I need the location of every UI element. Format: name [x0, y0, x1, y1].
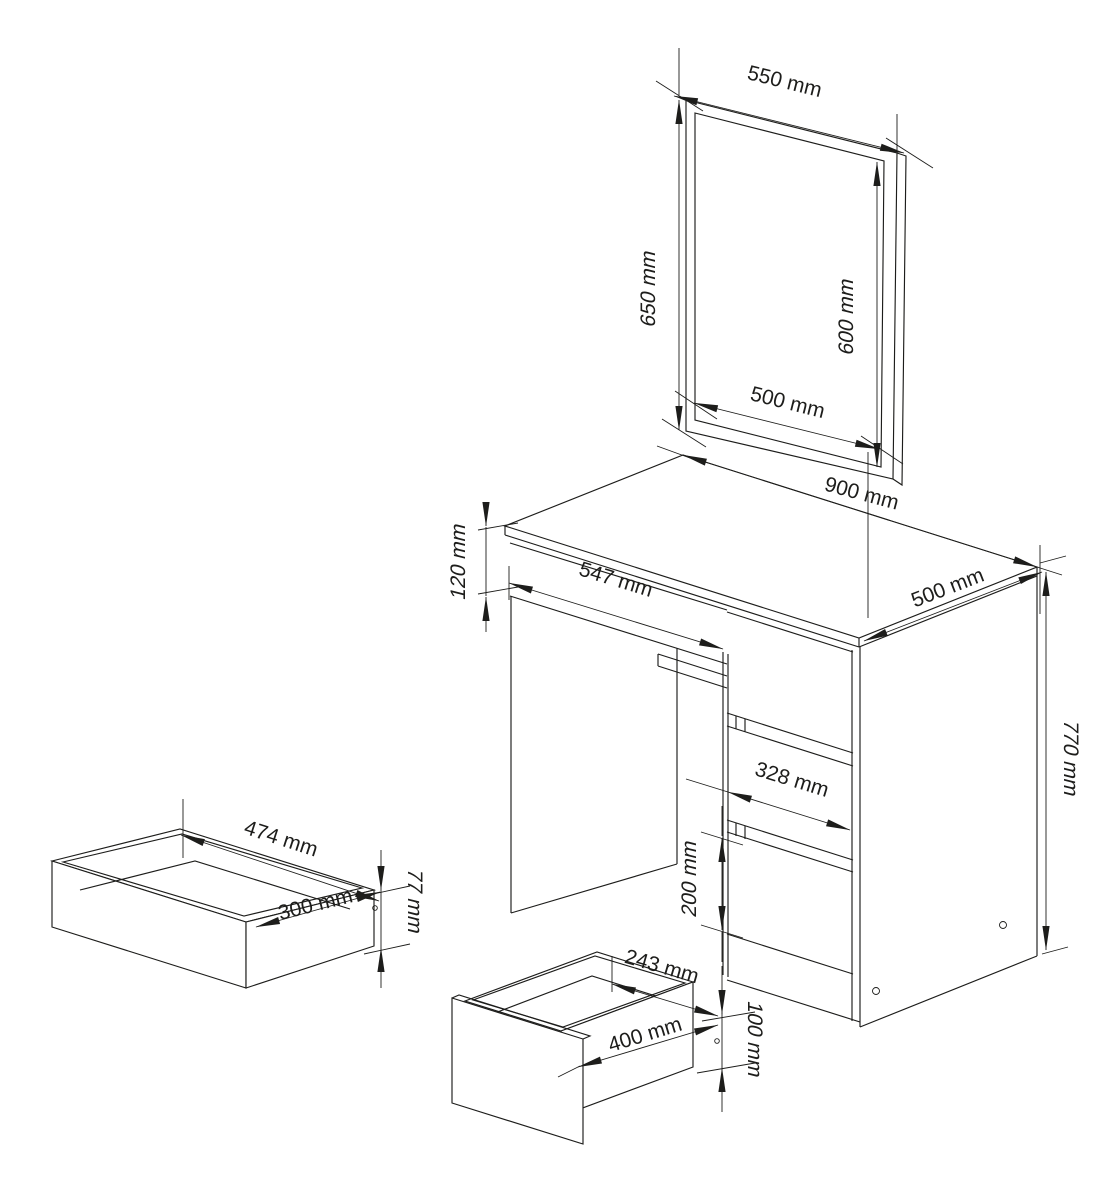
dim-label-200: 200 mm [677, 837, 701, 919]
furniture-dimension-drawing: 550 mm 650 mm 600 mm 500 mm 900 mm 500 m… [0, 0, 1114, 1200]
dim-bottom-drawer-height: 200 mm [677, 806, 743, 962]
dim-label-120: 120 mm [446, 520, 470, 602]
cam-lock-hole [1000, 922, 1007, 929]
dim-label-77: 77 mm [403, 867, 427, 937]
dim-drawer-front-width: 328 mm [686, 758, 850, 830]
desk-drawer-fronts [727, 612, 860, 1022]
drawer-gap-2 [727, 820, 853, 872]
dim-desk-height: 770 mm [1040, 556, 1083, 954]
drawer-rail-bracket [658, 654, 727, 688]
desk-center-partition [723, 652, 728, 977]
bottom-drawer-edge [727, 934, 853, 974]
cam-lock-hole [873, 988, 880, 995]
dim-label-550: 550 mm [745, 61, 824, 102]
dim-label-100: 100 mm [743, 999, 767, 1081]
desk-left-panel [511, 596, 677, 913]
mirror-panel [686, 100, 906, 485]
desk-right-panel [852, 576, 1037, 1027]
technical-drawing: 550 mm 650 mm 600 mm 500 mm 900 mm 500 m… [0, 0, 1114, 1200]
dim-base-height: 100 mm [697, 966, 767, 1112]
drawer-gap-1 [727, 713, 853, 766]
dim-label-770: 770 mm [1059, 718, 1083, 800]
desk-body [505, 455, 1037, 1027]
dim-label-328: 328 mm [752, 758, 831, 802]
drawer-side-hole [715, 1039, 720, 1044]
dim-desk-apron-height: 120 mm [446, 502, 518, 632]
dim-label-650: 650 mm [636, 247, 660, 329]
dim-label-600: 600 mm [834, 275, 858, 357]
